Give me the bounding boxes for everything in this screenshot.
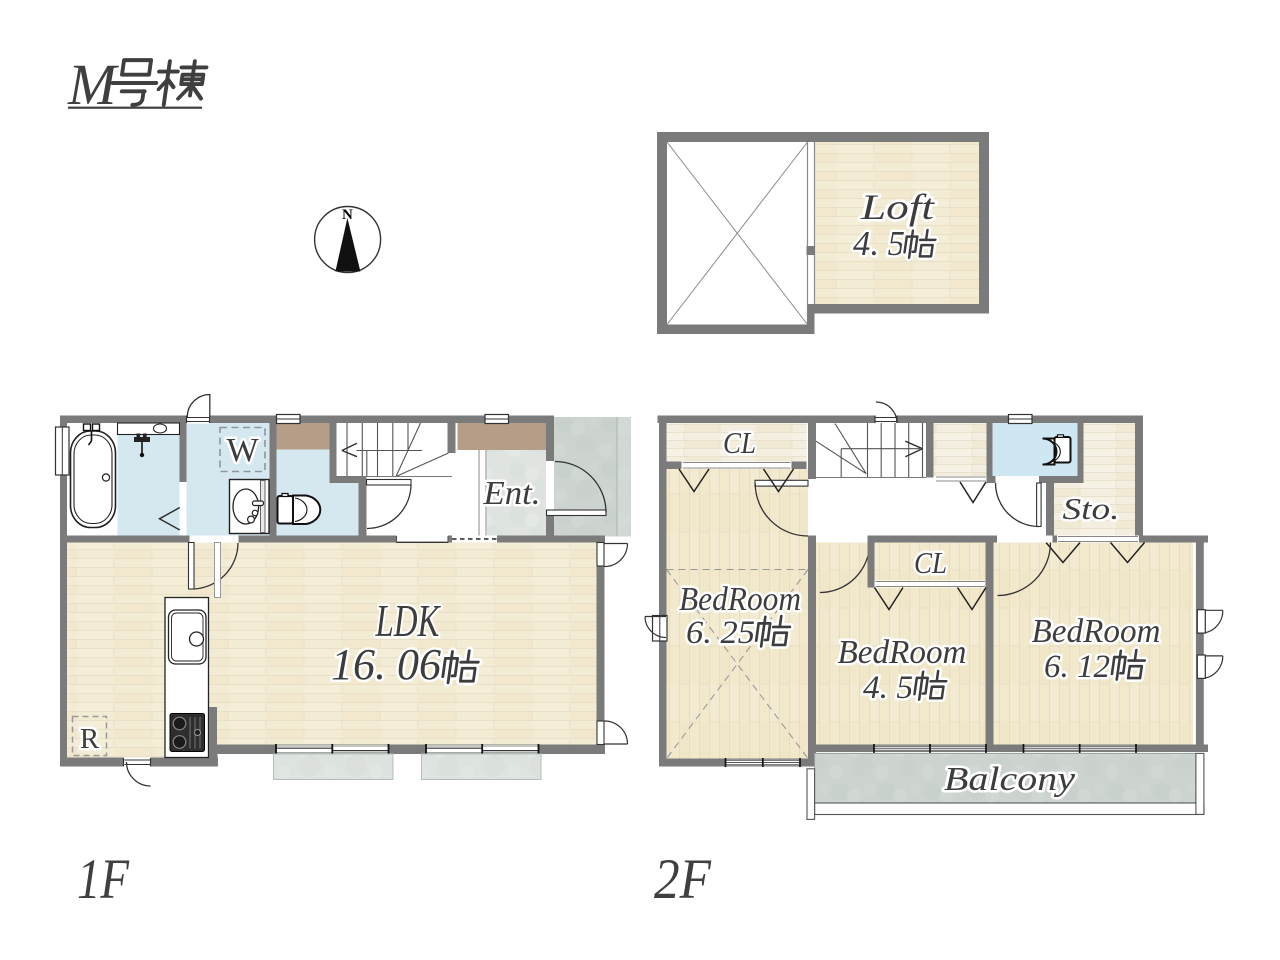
svg-text:Sto.: Sto. bbox=[1063, 491, 1120, 526]
svg-text:Loft: Loft bbox=[860, 187, 936, 227]
svg-text:16. 06: 16. 06 bbox=[331, 640, 441, 689]
svg-text:4. 5: 4. 5 bbox=[853, 224, 905, 263]
svg-text:LDK: LDK bbox=[375, 595, 441, 646]
svg-text:BedRoom: BedRoom bbox=[838, 634, 967, 671]
svg-text:6. 12: 6. 12 bbox=[1044, 649, 1110, 685]
svg-text:Balcony: Balcony bbox=[944, 761, 1076, 798]
svg-text:CL: CL bbox=[723, 425, 756, 460]
svg-text:W: W bbox=[226, 432, 259, 469]
svg-text:Ent.: Ent. bbox=[482, 475, 540, 512]
svg-text:4. 5: 4. 5 bbox=[863, 670, 913, 706]
svg-text:1F: 1F bbox=[77, 848, 130, 911]
svg-text:N: N bbox=[342, 207, 353, 223]
svg-text:R: R bbox=[80, 723, 100, 755]
svg-text:CL: CL bbox=[914, 545, 947, 580]
svg-text:BedRoom: BedRoom bbox=[1032, 613, 1161, 650]
svg-text:2F: 2F bbox=[654, 848, 712, 911]
svg-text:6. 25: 6. 25 bbox=[686, 615, 755, 651]
